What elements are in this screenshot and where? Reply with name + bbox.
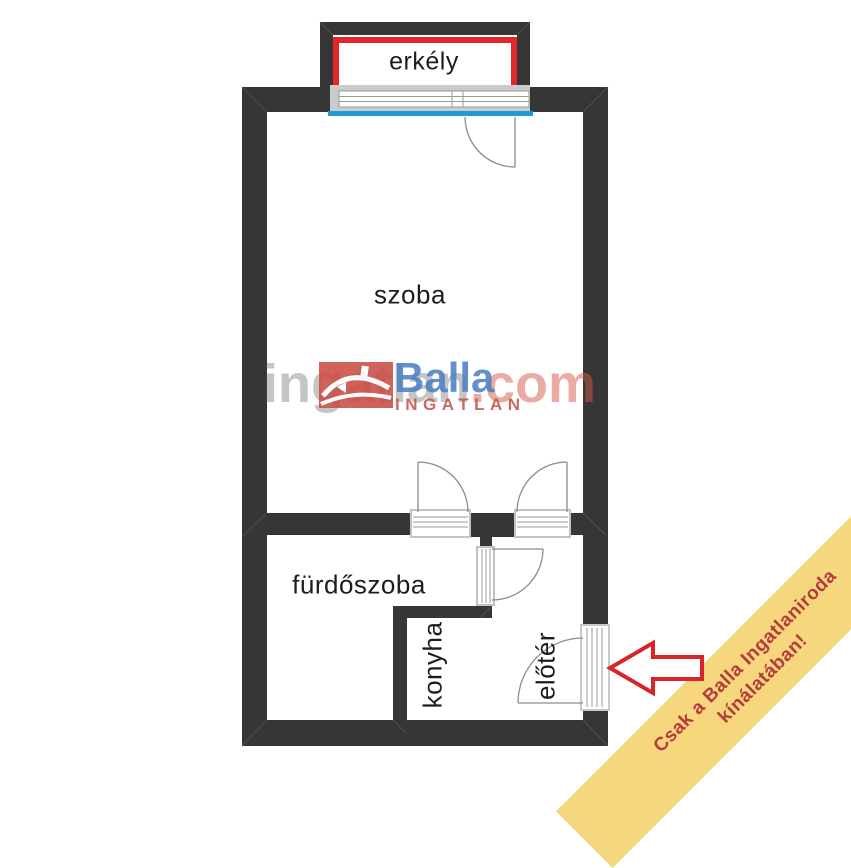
door-swing-arc	[517, 462, 567, 512]
house-icon	[319, 362, 393, 408]
room-label-kitchen: konyha	[418, 622, 449, 709]
balcony-wall-top	[320, 22, 530, 35]
balla-logo: Balla INGATLAN	[319, 362, 539, 412]
wall-kitchen-top	[393, 606, 492, 618]
balcony-window	[328, 85, 533, 116]
wall-interior-left	[267, 513, 413, 535]
room-label-room: szoba	[374, 280, 446, 311]
door-swing-arc	[492, 549, 543, 600]
floor-plan: ingatlan.com Balla INGATLAN erkély szoba…	[0, 0, 851, 768]
balcony-wall-right	[517, 22, 530, 90]
wall-interior-middle	[468, 513, 517, 537]
door-bathroom-hall	[477, 547, 543, 605]
door-swing-arc	[418, 462, 468, 512]
door-bathroom	[411, 462, 470, 537]
balla-logo-square	[319, 362, 393, 408]
wall-bottom	[242, 720, 608, 746]
room-label-balcony: erkély	[389, 48, 459, 77]
wall-kitchen-left	[393, 606, 407, 720]
window-pane	[339, 91, 529, 107]
door-hall	[515, 462, 570, 537]
balla-logo-subtitle: INGATLAN	[395, 395, 526, 415]
room-label-bathroom: fürdőszoba	[292, 570, 426, 601]
wall-left	[242, 87, 267, 746]
balcony-door-swing	[465, 117, 515, 167]
balcony-wall-left	[320, 22, 333, 90]
balla-logo-brand: Balla	[394, 356, 494, 400]
window-sill-blue	[328, 111, 533, 116]
room-label-hall: előtér	[531, 632, 562, 700]
